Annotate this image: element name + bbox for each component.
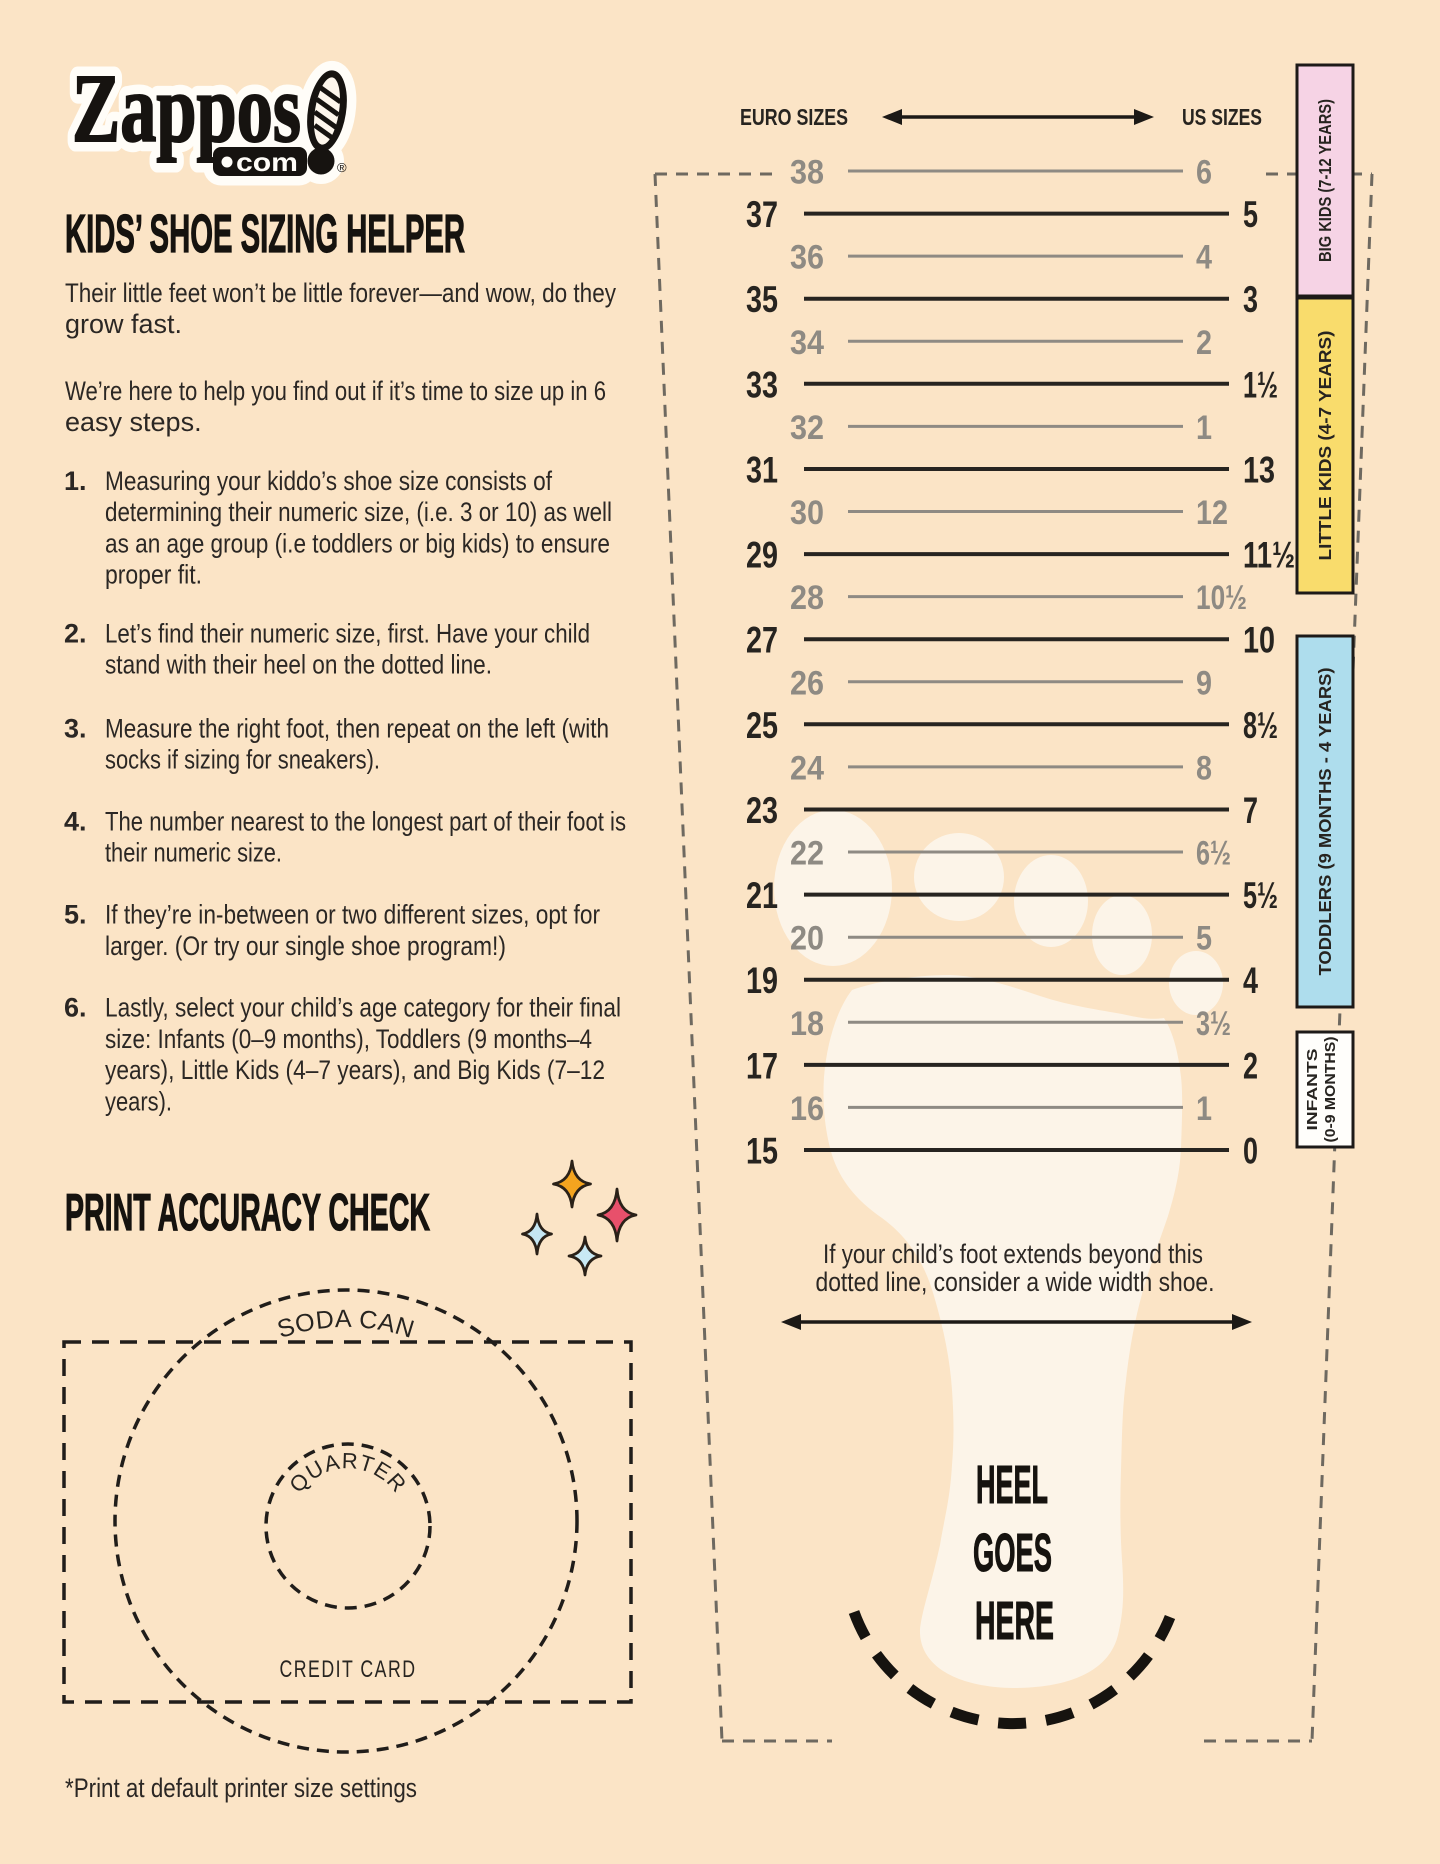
svg-text:18: 18 [790,1005,824,1043]
svg-text:PRINT ACCURACY CHECK: PRINT ACCURACY CHECK [65,1184,430,1242]
svg-text:BIG KIDS (7-12 YEARS): BIG KIDS (7-12 YEARS) [1315,99,1335,262]
svg-text:KIDS’ SHOE SIZING HELPER: KIDS’ SHOE SIZING HELPER [65,204,465,264]
svg-text:24: 24 [790,749,824,787]
svg-text:0: 0 [1243,1130,1258,1172]
svg-text:8: 8 [1196,749,1212,787]
svg-text:socks if sizing for sneakers).: socks if sizing for sneakers). [105,745,380,775]
svg-text:29: 29 [746,534,778,576]
svg-text:com: com [236,147,298,177]
svg-text:5½: 5½ [1243,874,1278,916]
svg-text:2: 2 [1196,324,1212,362]
svg-text:Measuring your kiddo’s shoe si: Measuring your kiddo’s shoe size consist… [105,466,552,496]
svg-text:QUARTER: QUARTER [284,1448,412,1497]
svg-text:3.: 3. [64,714,87,744]
svg-text:23: 23 [746,789,778,831]
svg-text:31: 31 [746,449,778,491]
svg-text:21: 21 [746,874,778,916]
svg-text:®: ® [337,160,347,175]
svg-text:2: 2 [1243,1044,1258,1086]
svg-text:1½: 1½ [1243,363,1278,405]
svg-text:dotted line, consider a wide w: dotted line, consider a wide width shoe. [816,1267,1215,1297]
svg-text:proper fit.: proper fit. [105,560,202,590]
svg-text:35: 35 [746,278,778,320]
svg-text:38: 38 [790,154,824,192]
svg-text:TODDLERS (9 MONTHS - 4 YEARS): TODDLERS (9 MONTHS - 4 YEARS) [1315,668,1335,976]
svg-text:Measure the right foot, then r: Measure the right foot, then repeat on t… [105,714,609,744]
svg-text:as an age group (i.e toddlers: as an age group (i.e toddlers or big kid… [105,528,610,558]
svg-text:4: 4 [1243,959,1258,1001]
svg-text:32: 32 [790,409,824,447]
svg-text:The number nearest to the long: The number nearest to the longest part o… [105,806,626,836]
svg-text:Let’s find their numeric size,: Let’s find their numeric size, first. Ha… [105,619,590,649]
svg-text:7: 7 [1243,789,1258,831]
svg-text:1: 1 [1196,409,1212,447]
svg-text:We’re here to help you find ou: We’re here to help you find out if it’s … [65,376,606,406]
svg-text:6½: 6½ [1196,835,1231,873]
svg-text:*Print at default printer size: *Print at default printer size settings [65,1773,417,1803]
svg-text:13: 13 [1243,449,1275,491]
svg-text:3½: 3½ [1196,1005,1231,1043]
svg-text:INFANTS: INFANTS [1304,1049,1321,1131]
svg-text:larger. (Or try our single sho: larger. (Or try our single shoe program!… [105,931,506,961]
svg-text:15: 15 [746,1130,778,1172]
svg-text:EURO SIZES: EURO SIZES [740,104,848,130]
svg-text:26: 26 [790,664,824,702]
svg-text:HERE: HERE [975,1591,1054,1651]
svg-text:HEEL: HEEL [976,1455,1048,1515]
svg-text:8½: 8½ [1243,704,1278,746]
svg-text:Lastly, select your child’s ag: Lastly, select your child’s age category… [105,993,621,1023]
svg-text:28: 28 [790,579,824,617]
svg-text:4: 4 [1196,239,1212,277]
svg-text:stand with their heel on the d: stand with their heel on the dotted line… [105,650,492,680]
svg-text:11½: 11½ [1243,534,1295,576]
svg-text:size: Infants (0–9 months), To: size: Infants (0–9 months), Toddlers (9 … [105,1024,592,1054]
svg-text:1: 1 [1196,1090,1212,1128]
svg-text:34: 34 [790,324,824,362]
svg-text:(0-9 MONTHS): (0-9 MONTHS) [1322,1037,1339,1143]
svg-text:5.: 5. [64,900,87,930]
svg-text:5: 5 [1243,193,1258,235]
svg-text:19: 19 [746,959,778,1001]
svg-text:22: 22 [790,835,824,873]
svg-text:33: 33 [746,363,778,405]
svg-text:10: 10 [1243,619,1275,661]
svg-text:6.: 6. [64,993,87,1023]
svg-text:Their little feet won’t be lit: Their little feet won’t be little foreve… [65,278,616,308]
svg-text:12: 12 [1196,494,1228,532]
svg-text:years).: years). [105,1086,172,1116]
svg-text:25: 25 [746,704,778,746]
svg-text:grow fast.: grow fast. [65,309,182,339]
svg-text:easy steps.: easy steps. [65,407,202,437]
svg-text:3: 3 [1243,278,1258,320]
svg-text:Zappos: Zappos [72,55,301,162]
svg-text:6: 6 [1196,154,1212,192]
svg-text:10½: 10½ [1196,579,1247,617]
svg-text:36: 36 [790,239,824,277]
svg-text:If they’re in-between or two d: If they’re in-between or two different s… [105,900,600,930]
svg-text:1.: 1. [64,466,87,496]
svg-text:CREDIT CARD: CREDIT CARD [280,1656,417,1683]
svg-text:5: 5 [1196,920,1212,958]
svg-text:27: 27 [746,619,778,661]
svg-text:9: 9 [1196,664,1212,702]
svg-text:US SIZES: US SIZES [1182,104,1262,130]
svg-text:30: 30 [790,494,824,532]
svg-text:GOES: GOES [973,1523,1052,1583]
svg-text:17: 17 [746,1044,778,1086]
svg-text:4.: 4. [64,806,87,836]
svg-text:20: 20 [790,920,824,958]
svg-text:16: 16 [790,1090,824,1128]
svg-text:determining their numeric size: determining their numeric size, (i.e. 3 … [105,497,612,527]
svg-text:37: 37 [746,193,778,235]
svg-text:LITTLE KIDS (4-7 YEARS): LITTLE KIDS (4-7 YEARS) [1315,331,1335,561]
svg-text:their numeric size.: their numeric size. [105,838,282,868]
svg-text:years), Little Kids (4–7 years: years), Little Kids (4–7 years), and Big… [105,1055,605,1085]
svg-text:If your child’s foot extends b: If your child’s foot extends beyond this [823,1239,1203,1269]
svg-text:2.: 2. [64,619,87,649]
svg-text:SODA CAN: SODA CAN [274,1305,418,1344]
